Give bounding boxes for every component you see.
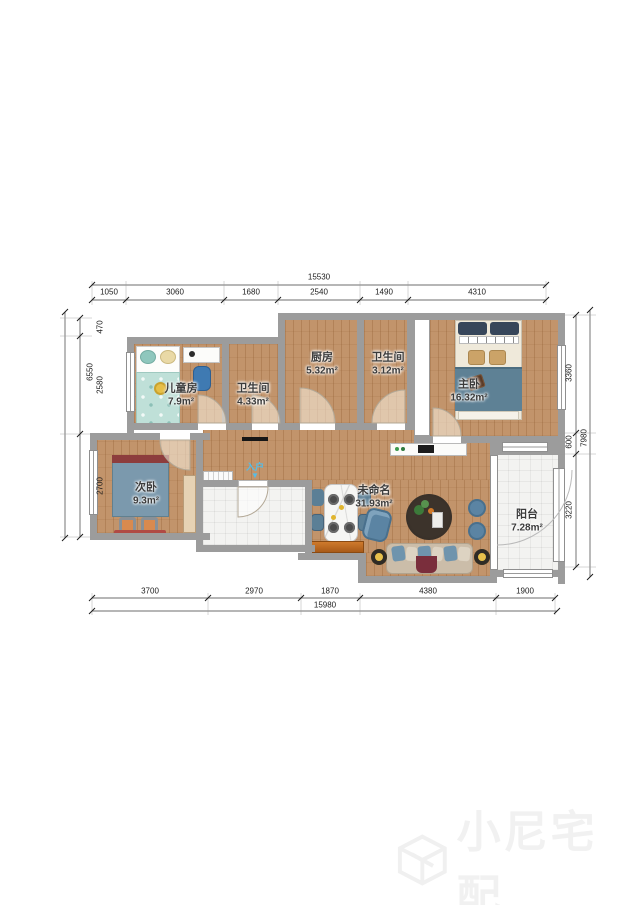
room-area: 7.28m²: [511, 522, 543, 535]
dining-plate-1: [328, 494, 339, 505]
master-cushion-tan-1: [468, 350, 485, 365]
wall: [90, 433, 160, 440]
master-pillow-2: [490, 322, 519, 335]
sofa-pillow-6: [457, 547, 470, 562]
room-name: 厨房: [306, 350, 338, 364]
wall: [405, 423, 414, 430]
dim-bottom-seg-5: 1900: [516, 587, 534, 596]
dim-left-seg-3: 2700: [96, 477, 105, 495]
room-name: 次卧: [133, 480, 159, 494]
dining-plate-2: [344, 494, 355, 505]
floor-hallway: [203, 430, 414, 480]
wall: [127, 337, 285, 344]
room-label-balcony: 阳台 7.28m²: [511, 507, 543, 534]
dining-garnish-1: [339, 505, 344, 510]
sofa-throw: [416, 556, 437, 573]
floor-lamp-left: [371, 549, 387, 565]
dim-top-total: 15530: [308, 273, 330, 282]
wall: [196, 433, 203, 552]
wall: [414, 436, 433, 443]
tv-plant-dot-2: [401, 447, 405, 451]
dim-right-seg-1: 3360: [565, 364, 574, 382]
master-foot-bench: [458, 411, 519, 420]
room-label-living: 未命名 31.93m²: [355, 483, 392, 510]
dim-top-seg-3: 1680: [242, 288, 260, 297]
dining-chair-1: [311, 489, 324, 506]
room-name: 卫生间: [237, 381, 270, 395]
wall: [358, 576, 497, 583]
tv-screen: [418, 445, 434, 453]
room-area: 3.12m²: [372, 365, 405, 378]
wall: [298, 553, 366, 560]
dim-top-seg-1: 1050: [100, 288, 118, 297]
floor-lamp-right: [474, 549, 490, 565]
wall: [407, 320, 414, 430]
window-balcony-top: [502, 442, 548, 452]
rug-plant-2: [421, 500, 429, 508]
room-label-children: 儿童房 7.9m²: [165, 381, 198, 408]
entry-arrow-icon: ▼: [246, 473, 264, 481]
room-label-second-bedroom: 次卧 9.3m²: [133, 480, 159, 507]
room-label-kitchen: 厨房 5.32m²: [306, 350, 338, 377]
master-cushion-row: [459, 336, 519, 344]
dining-plate-3: [328, 522, 339, 533]
room-label-master: 主卧 16.32m²: [450, 377, 487, 404]
master-pillow-1: [458, 322, 487, 335]
sofa-pillow-1: [391, 545, 406, 562]
dim-bottom-seg-3: 1870: [321, 587, 339, 596]
cube-logo-icon: [396, 833, 449, 887]
watermark-text: 小尼宅配: [457, 796, 640, 905]
dining-table: [324, 484, 358, 542]
wall: [335, 423, 377, 430]
second-bed-head: [112, 455, 169, 463]
children-pillow-1: [140, 350, 156, 364]
entry-marker: 入户 ▼: [246, 463, 264, 481]
floor-entry-alcove: [203, 487, 305, 545]
dim-left-seg-2: 2580: [96, 376, 105, 394]
floorplan-canvas: 15530 1050 3060 1680 2540 1490 4310 3700…: [0, 0, 640, 905]
wall: [285, 423, 300, 430]
wall: [196, 545, 315, 552]
window-balcony-right: [553, 468, 565, 562]
dim-right-seg-2: 600: [565, 435, 574, 448]
wall: [127, 423, 198, 430]
window-children-left: [126, 352, 135, 412]
window-balcony-bottom: [503, 569, 553, 578]
entry-door-leaf: [238, 480, 268, 487]
dim-bottom-total: 15980: [314, 601, 336, 610]
dim-bottom-seg-4: 4380: [419, 587, 437, 596]
wall: [203, 480, 238, 487]
dim-bottom-seg-1: 3700: [141, 587, 159, 596]
duct-shaft: [414, 318, 430, 436]
room-area: 4.33m²: [237, 396, 270, 409]
balcony-sliding-door: [490, 455, 498, 570]
room-area: 5.32m²: [306, 365, 338, 378]
dim-top-seg-5: 1490: [375, 288, 393, 297]
dining-plate-4: [344, 522, 355, 533]
rug-board: [432, 512, 443, 528]
room-name: 阳台: [511, 507, 543, 521]
room-label-bath-2: 卫生间 3.12m²: [372, 350, 405, 377]
room-name: 未命名: [355, 483, 392, 497]
dining-garnish-2: [331, 515, 336, 520]
room-area: 7.9m²: [165, 396, 198, 409]
sideboard: [308, 541, 364, 553]
wall: [357, 320, 364, 430]
second-wardrobe: [183, 475, 196, 533]
room-name: 卫生间: [372, 350, 405, 364]
sofa-pillow-5: [443, 545, 458, 561]
children-desk-lamp: [189, 351, 195, 357]
master-cushion-tan-2: [489, 350, 506, 365]
room-label-bath-1: 卫生间 4.33m²: [237, 381, 270, 408]
dim-right-seg-3: 3220: [565, 501, 574, 519]
room-area: 9.3m²: [133, 495, 159, 508]
dim-top-seg-6: 4310: [468, 288, 486, 297]
dim-right-total: 7980: [580, 429, 589, 447]
children-pillow-2: [160, 350, 176, 364]
dim-left-total: 6550: [86, 363, 95, 381]
wall: [90, 533, 210, 540]
dim-bottom-seg-2: 2970: [245, 587, 263, 596]
dim-top-seg-2: 3060: [166, 288, 184, 297]
dim-top-seg-4: 2540: [310, 288, 328, 297]
hallway-radiator: [242, 437, 268, 441]
room-name: 主卧: [450, 377, 487, 391]
room-name: 儿童房: [165, 381, 198, 395]
wall: [222, 344, 229, 423]
room-area: 16.32m²: [450, 392, 487, 405]
dining-chair-2: [311, 514, 324, 531]
wall: [278, 313, 285, 430]
round-chair-2: [468, 522, 486, 540]
rug: [406, 494, 452, 540]
watermark: 小尼宅配: [396, 796, 640, 905]
wall: [226, 423, 252, 430]
tv-plant-dot-1: [395, 447, 399, 451]
room-area: 31.93m²: [355, 498, 392, 511]
round-chair-1: [468, 499, 486, 517]
wall: [278, 313, 565, 320]
dim-left-seg-1: 470: [96, 320, 105, 333]
